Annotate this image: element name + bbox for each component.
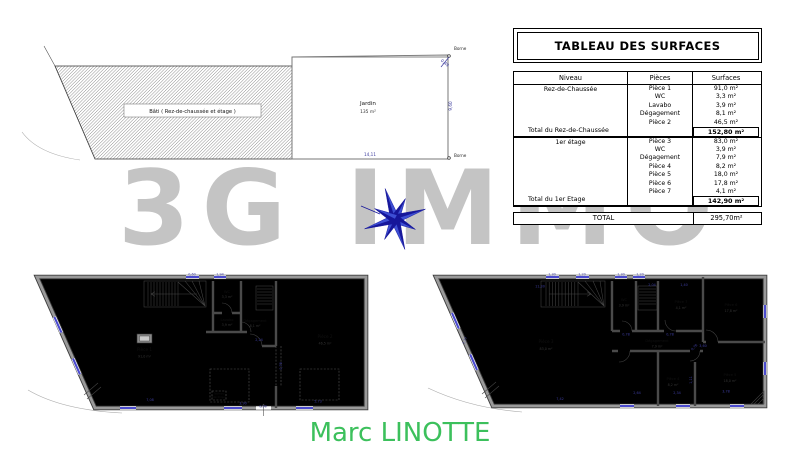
col-header-pieces: Pièces [627,72,693,84]
room-area: 17,8 m² [725,309,739,313]
room-cell: Pièce 2 [627,119,693,127]
col-header-niveau: Niveau [514,72,627,84]
room-label: Pièce 2 [317,334,332,339]
dimension-label: 1,20 [636,273,644,277]
room-cell: Pièce 5 [627,171,693,179]
dimension-label: 3,78 [722,390,730,394]
dimension-label: 1,30 [548,273,556,277]
borne-marker [448,55,451,58]
surface-cell: 17,8 m² [693,180,759,188]
room-label: Pièce 7 [675,300,688,304]
total-value: 152,80 m² [693,127,759,137]
room-area: 8,2 m² [668,383,680,387]
dimension-label: 14,11 [364,152,376,157]
dimension-label: 2,24 [255,338,263,342]
hatch-icon [137,334,152,343]
total-row-etage: Total du 1er Etage 142,90 m² [514,196,761,206]
dimension-label: 1,94 [216,273,224,277]
surface-table-header-row: Niveau Pièces Surfaces [514,72,761,85]
surface-cell: 46,5 m² [693,119,759,127]
room-area: 4,1 m² [676,306,688,310]
dimension-label: 3,90 [239,402,247,406]
dimension-label: 0,60 [188,273,196,277]
dimension-label: 7,08 [146,398,154,402]
total-row-rdc: Total du Rez-de-Chaussée 152,80 m² [514,127,761,137]
room-label: Dégagement [243,319,267,323]
surface-table: TABLEAU DES SURFACES Niveau Pièces Surfa… [513,28,762,225]
room-label: Pièce 6 [725,303,739,307]
borne-marker [448,157,451,160]
room-area: 7,9 m² [652,345,664,349]
bati-label: Bâti ( Rez-de-chaussée et étage ) [149,108,236,115]
room-cell: Pièce 7 [627,188,693,196]
grand-total-label: TOTAL [514,213,693,224]
room-area: 8,1 m² [250,324,262,328]
room-area: 91,0 m² [138,355,152,359]
surface-cell: 4,1 m² [693,188,759,196]
dimension-label: 5,73 [314,400,322,404]
surface-cell: 8,2 m² [693,163,759,171]
room-cell: Lavabo [627,102,693,110]
dimension-label: 1,30 [617,273,625,277]
dimension-label: 1,20 [578,273,586,277]
document-page: 3G IMMO Bâti ( Rez-de-chaussée et étage … [0,0,800,450]
surface-table-title-box: TABLEAU DES SURFACES [513,28,762,63]
room-area: 46,5 m² [319,342,333,346]
site-plan: Bâti ( Rez-de-chaussée et étage ) Jardin… [20,12,480,180]
dimension-label: 0,78 [279,362,283,370]
room-area: 18,0 m² [724,379,738,383]
room-area: 3,3 m² [222,295,234,299]
room-label: WC [224,290,231,294]
dimension-label: 2,04 [648,283,656,287]
room-area: 3,9 m² [619,304,631,308]
level-label: 1er étage [514,138,627,197]
dimension-label: 0,78 [622,333,630,337]
jardin-area [292,57,448,159]
total-label: Total du 1er Etage [514,196,627,206]
room-label: Pièce 5 [724,373,737,377]
borne-label: Borne [454,153,467,158]
room-label: Pièce 1 [137,347,152,352]
site-boundary-arc [22,132,80,160]
room-cell: Pièce 4 [627,163,693,171]
surface-cell: 8,1 m² [693,110,759,118]
room-area: 83,0 m² [540,347,554,351]
grand-total-value: 295,70m² [693,213,759,224]
surface-cell: 7,9 m² [693,154,759,162]
room-cell: Pièce 1 [627,85,693,93]
dimension-label: 9,60 [448,101,453,111]
footer: Marc LINOTTE [0,418,800,448]
site-boundary-line [44,46,55,66]
dimension-label: 2,64 [633,391,641,395]
col-header-surfaces: Surfaces [693,72,759,84]
dimension-label: 11,30 [535,285,545,289]
room-label: Dégagement [645,339,669,343]
dimension-label: 0,78 [666,333,674,337]
jardin-label: Jardin [359,101,376,107]
room-label: Pièce 4 [667,377,681,381]
total-label: Total du Rez-de-Chaussée [514,127,627,137]
table-group-rdc: Rez-de-Chaussée Pièce 1 91,0 m² WC 3,3 m… [514,85,761,127]
total-value: 142,90 m² [693,196,759,206]
level-label: Rez-de-Chaussée [514,85,627,127]
room-cell: WC [627,93,693,101]
dimension-label: 1,40 [680,283,688,287]
room-cell: Dégagement [627,154,693,162]
borne-label: Borne [454,46,467,51]
dimension-label: 7,42 [556,397,564,401]
dimension-label: 3,60 [699,344,707,348]
dimension-label: 0,90 [259,405,267,409]
grand-total-row: TOTAL 295,70m² [513,212,762,225]
surface-cell: 3,3 m² [693,93,759,101]
surface-table-main: Niveau Pièces Surfaces Rez-de-Chaussée P… [513,71,762,207]
tableau-electrique-label: électrique [212,395,226,399]
room-cell: Dégagement [627,110,693,118]
jardin-area-label: 135 m² [360,109,376,115]
room-label: Lavabo [220,318,233,322]
footer-agent-name: Marc LINOTTE [310,418,491,448]
compass-star-icon [360,184,430,254]
surface-table-title: TABLEAU DES SURFACES [555,39,721,53]
room-area: 3,9 m² [222,323,234,327]
room-label: Pièce 3 [538,339,553,344]
room-cell: Pièce 6 [627,180,693,188]
dimension-label: 2,34 [673,391,681,395]
room-cell: Pièce 3 [627,138,693,146]
surface-cell: 91,0 m² [693,85,759,93]
surface-cell: 3,9 m² [693,146,759,154]
dimension-label: 1,11 [689,376,693,384]
surface-cell: 18,0 m² [693,171,759,179]
floor-plan-etage: Pièce 3 83,0 m² WC 3,9 m² Dégagement 7,9… [425,268,770,414]
table-group-etage: 1er étage Pièce 3 83,0 m² WC 3,9 m² Déga… [514,137,761,197]
surface-cell: 3,9 m² [693,102,759,110]
surface-cell: 83,0 m² [693,138,759,146]
room-label: WC [621,298,628,302]
floor-plan-rdc: Pièce 1 91,0 m² WC 3,3 m² Lavabo 3,9 m² … [25,270,375,416]
